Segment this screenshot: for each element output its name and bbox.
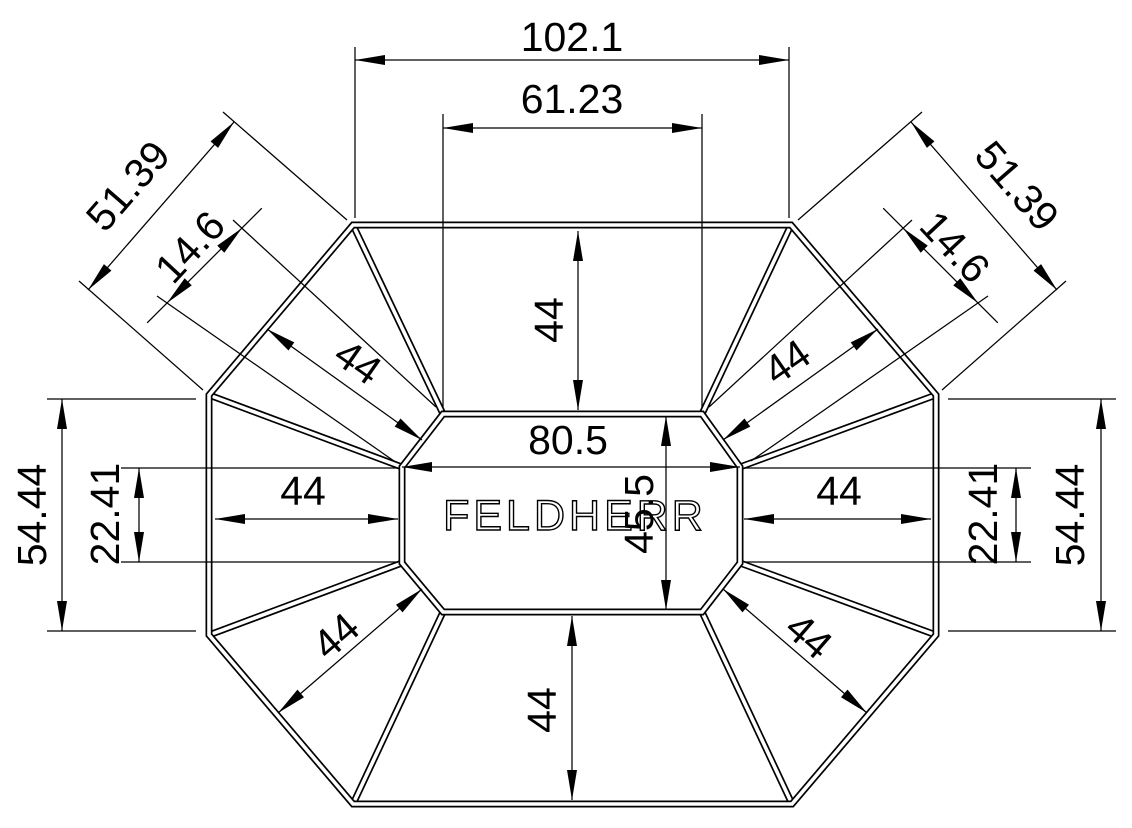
dimension-arrowhead [901, 514, 931, 524]
dimension-value: 22.41 [960, 463, 1006, 566]
dimension-value: 80.5 [528, 417, 608, 463]
dimension-arrowhead [278, 690, 304, 713]
radial-wall [209, 395, 402, 467]
radial-wall [353, 612, 443, 804]
dimension-arrowhead [573, 380, 583, 410]
dimension-value: 54.44 [9, 464, 55, 567]
dimension-value: 44 [280, 468, 326, 514]
dimension-value: 44 [777, 604, 842, 669]
dim-depth-bottom [567, 616, 577, 800]
dimension-value: 14.6 [146, 202, 234, 292]
dimension-value: 44 [526, 297, 572, 343]
dimension-arrowhead [368, 514, 398, 524]
dimension-value: 54.44 [1047, 464, 1093, 567]
dim-inner-side-left [121, 468, 398, 562]
dimension-arrowhead [723, 418, 750, 440]
dimension-arrowhead [1096, 399, 1106, 429]
dimension-arrowhead [672, 123, 702, 133]
dimension-arrowhead [267, 329, 294, 351]
radial-wall [209, 563, 402, 635]
cad-drawing-canvas: FELDHERR102.161.234480.545.54454.4422.41… [0, 0, 1132, 828]
dimension-arrowhead [134, 468, 144, 498]
radial-wall [740, 563, 936, 635]
dimension-value: 22.41 [82, 463, 128, 566]
dimension-arrowhead [567, 770, 577, 800]
dimension-arrowhead [1011, 468, 1021, 498]
dimension-arrowhead [57, 601, 67, 631]
dim-depth-right [744, 514, 931, 524]
dimension-arrowhead [211, 122, 234, 148]
drawing-page: FELDHERR102.161.234480.545.54454.4422.41… [0, 0, 1132, 828]
dimension-arrowhead [57, 399, 67, 429]
dimension-arrowhead [215, 514, 245, 524]
extension-line [942, 281, 1066, 390]
dimension-value: 61.23 [521, 76, 624, 122]
dimension-value: 45.5 [616, 474, 662, 554]
dim-top-width [355, 47, 789, 218]
dimension-value: 44 [326, 330, 390, 394]
dim-inner-width [402, 462, 740, 472]
dimension-value: 51.39 [966, 132, 1068, 240]
dimension-arrowhead [1096, 601, 1106, 631]
dimension-value: 44 [519, 687, 565, 733]
extension-line [223, 112, 347, 220]
dimension-arrowhead [759, 55, 789, 65]
dimension-arrowhead [567, 616, 577, 646]
dimension-arrowhead [396, 589, 422, 612]
extension-line [79, 281, 203, 390]
dimension-arrowhead [744, 514, 774, 524]
dimension-value: 51.39 [77, 132, 179, 240]
dimension-arrowhead [443, 123, 473, 133]
dimension-arrowhead [1011, 532, 1021, 562]
dim-depth-left [215, 514, 398, 524]
dimension-value: 44 [816, 468, 862, 514]
dimension-arrowhead [661, 580, 671, 610]
dimension-arrowhead [355, 55, 385, 65]
dimension-value: 102.1 [521, 14, 624, 60]
center-brand-text: FELDHERR [443, 492, 707, 540]
dimension-arrowhead [88, 264, 111, 290]
dimension-arrowhead [851, 329, 878, 351]
dimension-arrowhead [134, 532, 144, 562]
dim-depth-top [573, 231, 583, 410]
dimension-arrowhead [661, 416, 671, 446]
dimension-arrowhead [395, 418, 422, 440]
dimension-arrowhead [1034, 264, 1057, 290]
radial-wall [740, 395, 936, 467]
extension-line [798, 112, 922, 220]
dimension-arrowhead [841, 690, 867, 713]
radial-wall [702, 612, 792, 804]
dim-inner-top-width [443, 114, 702, 408]
dimension-value: 14.6 [911, 202, 999, 292]
dimension-arrowhead [723, 589, 749, 612]
dimension-value: 44 [304, 604, 369, 669]
dimension-value: 44 [755, 330, 819, 394]
dimension-arrowhead [573, 231, 583, 261]
dimension-arrowhead [911, 122, 934, 148]
